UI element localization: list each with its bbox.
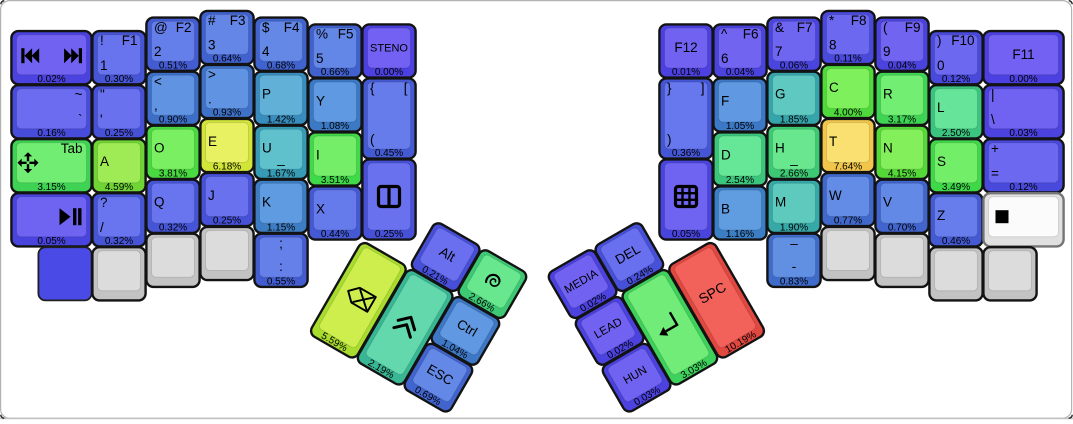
svg-text:0.04%: 0.04% [726, 67, 754, 78]
svg-text:Y: Y [316, 93, 325, 108]
svg-text:–: – [790, 236, 798, 251]
svg-text:1.42%: 1.42% [267, 115, 295, 126]
svg-text:F7: F7 [797, 20, 813, 35]
svg-text:M: M [775, 195, 786, 210]
svg-text:0.25%: 0.25% [213, 216, 241, 227]
svg-text:#: # [208, 13, 216, 28]
svg-text:1.08%: 1.08% [321, 121, 349, 132]
svg-text:F6: F6 [743, 27, 759, 42]
svg-text:8: 8 [829, 38, 837, 53]
svg-text:0.46%: 0.46% [942, 236, 970, 247]
svg-text:X: X [316, 201, 325, 216]
svg-text:F3: F3 [230, 13, 246, 28]
svg-text:2.66%: 2.66% [780, 168, 808, 179]
svg-text:O: O [154, 141, 165, 156]
svg-text:R: R [883, 87, 893, 102]
svg-text:6.18%: 6.18% [213, 162, 241, 173]
svg-text:!: ! [100, 33, 104, 48]
svg-text:0.64%: 0.64% [213, 54, 241, 65]
svg-text:3.17%: 3.17% [888, 115, 916, 126]
svg-text:E: E [208, 134, 217, 149]
svg-text:A: A [100, 154, 109, 169]
svg-text:B: B [721, 201, 730, 216]
svg-text:3.51%: 3.51% [321, 175, 349, 186]
svg-text:0.70%: 0.70% [888, 222, 916, 233]
svg-text:*: * [829, 13, 835, 28]
svg-text:0.12%: 0.12% [1009, 182, 1037, 193]
svg-text:0.30%: 0.30% [105, 74, 133, 85]
svg-text:(: ( [883, 20, 888, 35]
svg-text:4.59%: 4.59% [105, 182, 133, 193]
svg-text:0.01%: 0.01% [672, 67, 700, 78]
svg-text:%: % [316, 27, 328, 42]
svg-text:F10: F10 [951, 33, 974, 48]
svg-text:': ' [100, 112, 103, 127]
svg-text:.: . [208, 92, 212, 107]
svg-text:0.93%: 0.93% [213, 108, 241, 119]
svg-text:3.49%: 3.49% [942, 182, 970, 193]
svg-text:C: C [829, 80, 839, 95]
svg-text:2.54%: 2.54% [726, 175, 754, 186]
svg-text:0.05%: 0.05% [37, 236, 65, 247]
svg-text:F4: F4 [284, 20, 300, 35]
svg-text:0.36%: 0.36% [672, 148, 700, 159]
svg-text:G: G [775, 87, 786, 102]
svg-text:1.67%: 1.67% [267, 168, 295, 179]
svg-text:~: ~ [75, 87, 83, 102]
svg-text:F2: F2 [176, 20, 192, 35]
svg-text:): ) [667, 132, 672, 147]
svg-text:F8: F8 [851, 13, 867, 28]
svg-text::: : [279, 259, 283, 274]
svg-text:6: 6 [721, 51, 729, 66]
svg-text:I: I [316, 147, 320, 162]
svg-text:0.55%: 0.55% [267, 276, 295, 287]
svg-text:0.44%: 0.44% [321, 229, 349, 240]
svg-text:0.04%: 0.04% [888, 61, 916, 72]
svg-text:1.05%: 1.05% [726, 121, 754, 132]
svg-text:T: T [829, 134, 837, 149]
svg-text:\: \ [991, 112, 995, 127]
svg-text:?: ? [100, 195, 108, 210]
svg-text:Q: Q [154, 195, 165, 210]
svg-text:0.02%: 0.02% [37, 74, 65, 85]
svg-text:0: 0 [937, 58, 945, 73]
svg-text:0.06%: 0.06% [780, 61, 808, 72]
svg-text:0.00%: 0.00% [1009, 74, 1037, 85]
svg-text:F5: F5 [338, 27, 354, 42]
svg-text:$: $ [262, 20, 270, 35]
svg-text:0.00%: 0.00% [375, 67, 403, 78]
svg-text:5: 5 [316, 51, 324, 66]
svg-text:Tab: Tab [61, 141, 83, 156]
svg-text:_: _ [789, 151, 798, 166]
svg-text:4.15%: 4.15% [888, 168, 916, 179]
svg-text:@: @ [154, 20, 168, 35]
svg-text:S: S [937, 154, 946, 169]
svg-text:P: P [262, 87, 271, 102]
svg-text:_: _ [276, 151, 285, 166]
svg-text:1.15%: 1.15% [267, 222, 295, 233]
svg-text:0.12%: 0.12% [942, 74, 970, 85]
svg-text:0.32%: 0.32% [159, 222, 187, 233]
svg-text:(: ( [370, 132, 375, 147]
svg-text:1.90%: 1.90% [780, 222, 808, 233]
svg-text:K: K [262, 195, 271, 210]
svg-text:1: 1 [100, 58, 108, 73]
svg-text:N: N [883, 141, 893, 156]
svg-text:|: | [991, 87, 995, 102]
svg-text:J: J [208, 188, 215, 203]
svg-text:`: ` [78, 112, 83, 127]
svg-text:L: L [937, 100, 945, 115]
svg-text:>: > [208, 67, 216, 82]
svg-text:0.45%: 0.45% [375, 148, 403, 159]
svg-text:{: { [370, 81, 375, 96]
svg-text:W: W [829, 188, 842, 203]
svg-text:0.25%: 0.25% [375, 229, 403, 240]
svg-text:&: & [775, 20, 784, 35]
svg-text:+: + [991, 141, 999, 156]
svg-text:0.32%: 0.32% [105, 236, 133, 247]
svg-text:=: = [991, 166, 999, 181]
svg-text:0.68%: 0.68% [267, 61, 295, 72]
svg-text:}: } [667, 81, 672, 96]
svg-text:F: F [721, 93, 729, 108]
svg-text:,: , [154, 98, 158, 113]
svg-text:^: ^ [721, 27, 728, 42]
svg-text:0.51%: 0.51% [159, 61, 187, 72]
svg-text:D: D [721, 147, 731, 162]
svg-text:F11: F11 [1012, 47, 1034, 62]
svg-text:4.00%: 4.00% [834, 108, 862, 119]
svg-text:0.05%: 0.05% [672, 229, 700, 240]
svg-text:0.03%: 0.03% [1009, 128, 1037, 139]
svg-text:4: 4 [262, 44, 270, 59]
svg-text:0.25%: 0.25% [105, 128, 133, 139]
svg-text:<: < [154, 74, 162, 89]
svg-text:2.50%: 2.50% [942, 128, 970, 139]
svg-text:STENO: STENO [370, 42, 408, 54]
svg-text:0.90%: 0.90% [159, 115, 187, 126]
svg-text:0.83%: 0.83% [780, 276, 808, 287]
svg-text:1.16%: 1.16% [726, 229, 754, 240]
svg-text:F1: F1 [122, 33, 138, 48]
svg-text:0.16%: 0.16% [37, 128, 65, 139]
svg-text:0.66%: 0.66% [321, 67, 349, 78]
svg-text:-: - [792, 259, 797, 274]
svg-text:7: 7 [775, 44, 783, 59]
svg-text:7.64%: 7.64% [834, 162, 862, 173]
svg-text:2: 2 [154, 44, 162, 59]
svg-text:3.15%: 3.15% [37, 182, 65, 193]
svg-text:[: [ [404, 81, 408, 96]
svg-text:H: H [775, 141, 785, 156]
svg-text:Z: Z [937, 208, 945, 223]
svg-text:9: 9 [883, 44, 891, 59]
svg-text:": " [100, 87, 105, 102]
svg-text:1.85%: 1.85% [780, 115, 808, 126]
svg-text:): ) [937, 33, 942, 48]
svg-text:3.81%: 3.81% [159, 168, 187, 179]
svg-text:F12: F12 [674, 40, 697, 55]
svg-text:/: / [100, 220, 104, 235]
svg-text:0.77%: 0.77% [834, 216, 862, 227]
svg-text:0.11%: 0.11% [834, 54, 862, 65]
svg-text:V: V [883, 195, 892, 210]
svg-text:U: U [262, 141, 272, 156]
svg-text:F9: F9 [905, 20, 921, 35]
svg-text:3: 3 [208, 38, 216, 53]
svg-text:;: ; [279, 236, 283, 251]
svg-text:]: ] [701, 81, 705, 96]
